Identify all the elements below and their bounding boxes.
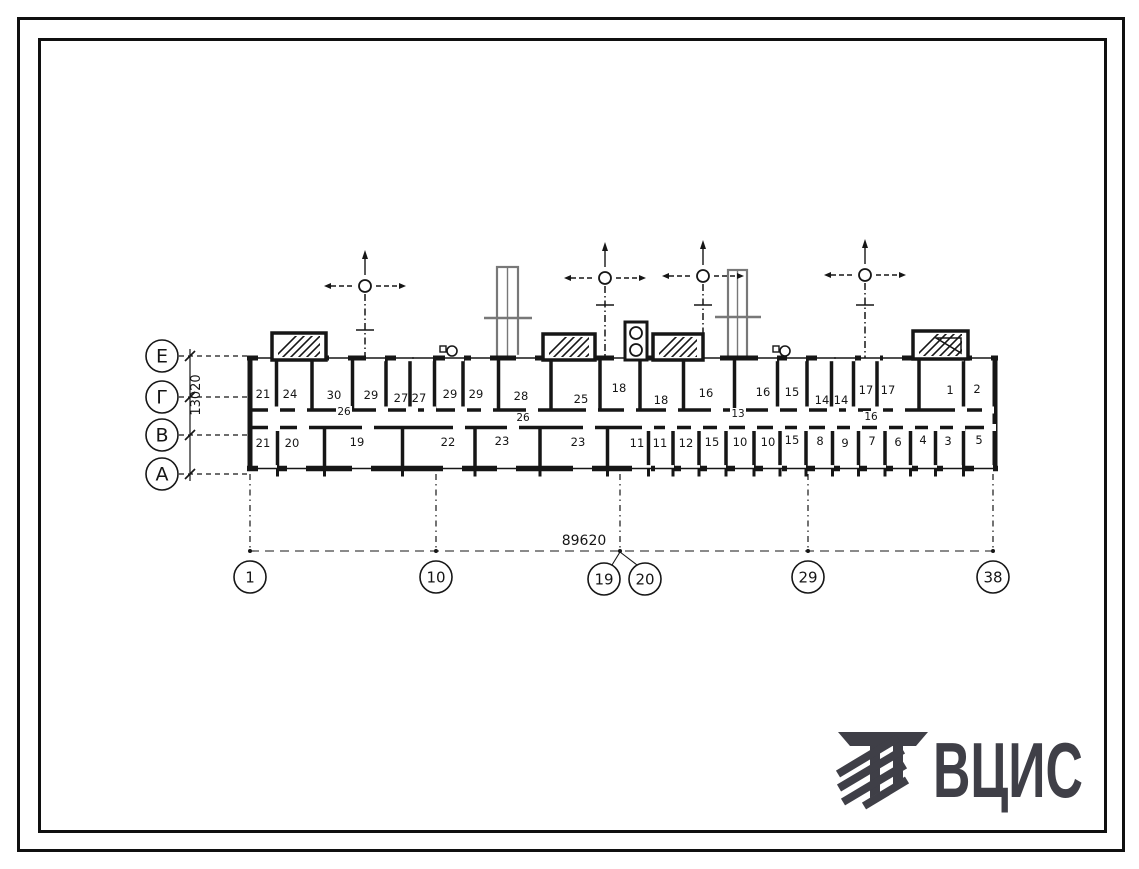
room-number: 14 [834, 393, 849, 407]
door-opening [955, 407, 967, 414]
col-axis-label: 20 [635, 571, 654, 589]
vent-axis-arrow [737, 273, 744, 279]
room-number: 2 [973, 382, 980, 396]
vent-axis-arrow [564, 275, 571, 281]
door-opening [928, 424, 940, 431]
room-number: 20 [285, 436, 300, 450]
room-number: 15 [785, 433, 800, 447]
vent-axis-arrow [324, 283, 331, 289]
room-number: 18 [612, 381, 627, 395]
axis-dot [248, 549, 252, 553]
col-axis-label: 1 [245, 569, 255, 587]
room-number: 28 [514, 389, 529, 403]
vent-axis-arrow [639, 275, 646, 281]
door-opening [953, 424, 965, 431]
door-opening [376, 407, 388, 414]
vent-axis-arrow [700, 240, 706, 249]
room-number: 22 [441, 435, 456, 449]
room-number: 1 [946, 383, 953, 397]
door-opening [984, 424, 996, 431]
room-number: 4 [919, 433, 926, 447]
room-number: 30 [327, 388, 342, 402]
room-number: 29 [469, 387, 484, 401]
col-axis-label: 19 [594, 571, 613, 589]
col-axis-label: 10 [426, 569, 445, 587]
axis-leader [612, 552, 620, 565]
room-number: 9 [841, 436, 848, 450]
vent-axis-circle [859, 269, 871, 281]
vent-axis-arrow [824, 272, 831, 278]
vent-symbol [773, 346, 779, 352]
door-opening [642, 424, 654, 431]
door-opening [424, 407, 436, 414]
door-opening [507, 424, 519, 431]
door-opening [666, 407, 678, 414]
room-number: 29 [443, 387, 458, 401]
row-axis-label: А [156, 464, 169, 486]
door-opening [982, 407, 994, 414]
room-number: 15 [785, 385, 800, 399]
vent-symbol [780, 346, 790, 356]
vent-axis-circle [599, 272, 611, 284]
door-opening [797, 424, 809, 431]
door-opening [295, 407, 307, 414]
room-number: 12 [679, 436, 694, 450]
vent-axis-circle [359, 280, 371, 292]
room-number: 29 [364, 388, 379, 402]
door-opening [846, 407, 858, 414]
door-opening [827, 407, 839, 414]
room-number: 14 [815, 393, 830, 407]
vent-axis-arrow [862, 239, 868, 248]
door-opening [362, 424, 374, 431]
room-number: 10 [733, 435, 748, 449]
door-opening [624, 407, 636, 414]
room-number: 15 [705, 435, 720, 449]
vent-symbol [440, 346, 446, 352]
vent-axis-arrow [662, 273, 669, 279]
row-axis-label: Е [156, 346, 168, 368]
room-number: 11 [653, 436, 668, 450]
col-axis-label: 29 [798, 569, 817, 587]
room-number: 27 [412, 391, 427, 405]
door-opening [691, 424, 703, 431]
axis-dot [991, 549, 995, 553]
logo-mark-icon [838, 732, 928, 806]
room-number: 25 [574, 392, 589, 406]
corridor-label: 13 [731, 408, 744, 420]
door-opening [825, 424, 837, 431]
room-number: 18 [654, 393, 669, 407]
room-number: 23 [571, 435, 586, 449]
room-number: 16 [756, 385, 771, 399]
door-opening [406, 407, 418, 414]
row-axis-label: Г [156, 387, 168, 409]
axis-dot [434, 549, 438, 553]
room-number: 6 [894, 435, 901, 449]
door-opening [903, 424, 915, 431]
row-axis-label: В [155, 425, 168, 447]
door-opening [455, 407, 467, 414]
length-dimension-label: 89620 [562, 533, 607, 549]
logo: ВЦИС [838, 726, 1083, 814]
corridor-label: 26 [516, 412, 530, 424]
vent-axis-circle [697, 270, 709, 282]
door-opening [297, 424, 309, 431]
door-opening [481, 407, 493, 414]
axis-dot [806, 549, 810, 553]
room-number: 23 [495, 434, 510, 448]
room-number: 3 [944, 434, 951, 448]
door-opening [586, 407, 598, 414]
corridor-label: 16 [864, 411, 878, 423]
room-number: 19 [350, 435, 365, 449]
room-number: 21 [256, 436, 271, 450]
door-opening [665, 424, 677, 431]
stair-vestibule [653, 334, 703, 360]
room-number: 27 [394, 391, 409, 405]
door-opening [850, 424, 862, 431]
room-number: 17 [881, 383, 896, 397]
col-axis-label: 38 [983, 569, 1002, 587]
room-number: 24 [283, 387, 298, 401]
room-number: 17 [859, 383, 874, 397]
door-opening [453, 424, 465, 431]
vent-axis-arrow [602, 242, 608, 251]
corridor-label: 26 [337, 406, 351, 418]
floor-plan-drawing: ЕГВА110192029382124302927272929282518181… [0, 0, 1139, 869]
door-opening [773, 424, 785, 431]
vent-axis-arrow [362, 250, 368, 259]
room-number: 8 [816, 434, 823, 448]
room-number: 7 [868, 434, 875, 448]
depth-dimension-label: 13020 [189, 374, 204, 415]
door-opening [768, 407, 780, 414]
drawing-sheet: ЕГВА110192029382124302927272929282518181… [0, 0, 1139, 869]
logo-text: ВЦИС [933, 726, 1083, 814]
door-opening [797, 407, 809, 414]
door-opening [583, 424, 595, 431]
door-opening [268, 424, 280, 431]
room-number: 10 [761, 435, 776, 449]
axis-leader [620, 552, 637, 565]
room-number: 11 [630, 436, 645, 450]
door-opening [268, 407, 280, 414]
room-number: 16 [699, 386, 714, 400]
vent-axis-arrow [899, 272, 906, 278]
room-number: 5 [975, 433, 982, 447]
door-opening [893, 407, 905, 414]
vent-axis-arrow [399, 283, 406, 289]
room-number: 21 [256, 387, 271, 401]
vent-symbol [447, 346, 457, 356]
door-opening [717, 424, 729, 431]
door-opening [711, 407, 723, 414]
door-opening [745, 424, 757, 431]
door-opening [877, 424, 889, 431]
